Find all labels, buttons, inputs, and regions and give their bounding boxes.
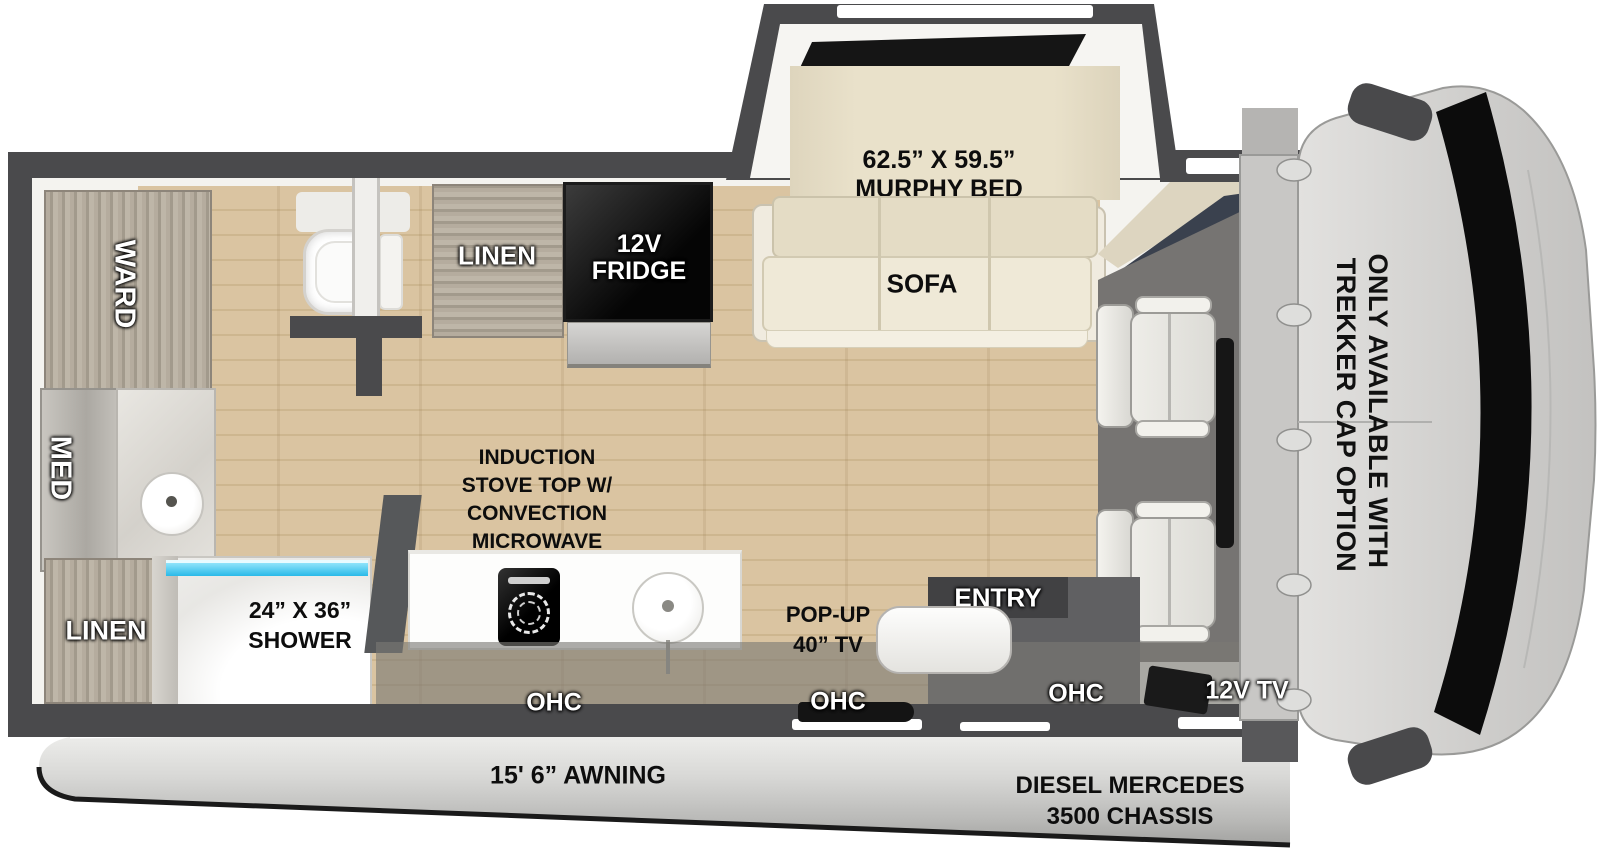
ohc-label-right: OHC	[1048, 680, 1104, 709]
awning-label: 15' 6” AWNING	[490, 762, 666, 791]
partition-upper	[352, 176, 380, 318]
cab-note-line-1: ONLY AVAILABLE WITH	[1363, 253, 1393, 568]
stove-note-label: INDUCTION STOVE TOP W/ CONVECTION MICROW…	[462, 444, 613, 556]
stove-note-line-2: STOVE TOP W/	[462, 472, 613, 500]
cap-rivet-1	[1277, 159, 1311, 181]
body-left-wall	[8, 152, 32, 737]
popup-tv-line-2: 40” TV	[786, 630, 870, 660]
sofa-label: SOFA	[887, 269, 958, 300]
bottom-window-stripe-2	[960, 722, 1050, 731]
body-bottom-wall	[8, 704, 1290, 737]
partition-stem	[356, 338, 382, 396]
cab-skirt-tab-bottom	[1242, 716, 1298, 762]
shower-glass	[166, 560, 368, 576]
cap-rivet-4	[1277, 574, 1311, 596]
partition-tee	[290, 316, 422, 338]
sofa-back	[772, 196, 1098, 258]
toilet-tank	[379, 234, 403, 310]
seat-2-armrest-bottom	[1135, 625, 1210, 643]
rv-floorplan: 15' 6” AWNING DIESEL MERCEDES 3500 CHASS…	[0, 0, 1600, 868]
fridge-line-2: FRIDGE	[592, 258, 686, 285]
seat-2-cushion	[1130, 517, 1216, 629]
bath-linen-label: LINEN	[66, 616, 147, 647]
stove-note-line-1: INDUCTION	[462, 444, 613, 472]
stove-burner-ring-inner	[517, 601, 541, 625]
murphy-dim-line: 62.5” X 59.5”	[855, 146, 1023, 175]
seat-1-armrest-bottom	[1135, 420, 1210, 438]
fridge-lower-panel	[567, 322, 711, 368]
kitchen-linen-label: LINEN	[458, 241, 536, 272]
stove-vent-slot	[508, 577, 550, 584]
popup-tv-line-1: POP-UP	[786, 600, 870, 630]
seat-1-seam	[1168, 314, 1171, 422]
fridge-label: 12V FRIDGE	[592, 231, 686, 285]
chassis-line-2: 3500 CHASSIS	[1016, 801, 1245, 832]
stove-note-line-3: CONVECTION	[462, 500, 613, 528]
sofa-seam-2	[988, 198, 991, 330]
fridge-line-1: 12V	[592, 231, 686, 258]
slideout-window-stripe	[837, 5, 1093, 18]
popup-tv-label: POP-UP 40” TV	[786, 600, 870, 660]
bath-faucet-dot	[166, 496, 177, 507]
body-top-wall	[8, 152, 748, 178]
ohc-label-left: OHC	[526, 689, 582, 718]
cab-note-line-2: TREKKER CAP OPTION	[1331, 258, 1361, 573]
cap-rivet-2	[1277, 304, 1311, 326]
sofa-seam-1	[878, 198, 881, 330]
chassis-label: DIESEL MERCEDES 3500 CHASSIS	[1016, 770, 1245, 832]
cab-roof-tab-top	[1242, 108, 1298, 154]
seat-2-seam	[1168, 519, 1171, 627]
cap-rivet-3	[1277, 429, 1311, 451]
ward-label: WARD	[108, 240, 141, 329]
cab-tv-label: 12V TV	[1205, 677, 1288, 706]
shower-line-1: 24” X 36”	[248, 595, 352, 625]
shower-line-2: SHOWER	[248, 625, 352, 655]
entry-door	[876, 606, 1012, 674]
med-label: MED	[44, 436, 77, 500]
sofa-front-lip	[766, 330, 1088, 348]
seat-1-cushion	[1130, 312, 1216, 424]
shower-label: 24” X 36” SHOWER	[248, 595, 352, 655]
stove-note-line-4: MICROWAVE	[462, 528, 613, 556]
chassis-line-1: DIESEL MERCEDES	[1016, 770, 1245, 801]
seat-1-backrest	[1096, 304, 1134, 428]
ohc-label-mid: OHC	[810, 688, 866, 717]
shower-side-wall	[152, 556, 178, 708]
kitchen-faucet-dot	[662, 600, 674, 612]
